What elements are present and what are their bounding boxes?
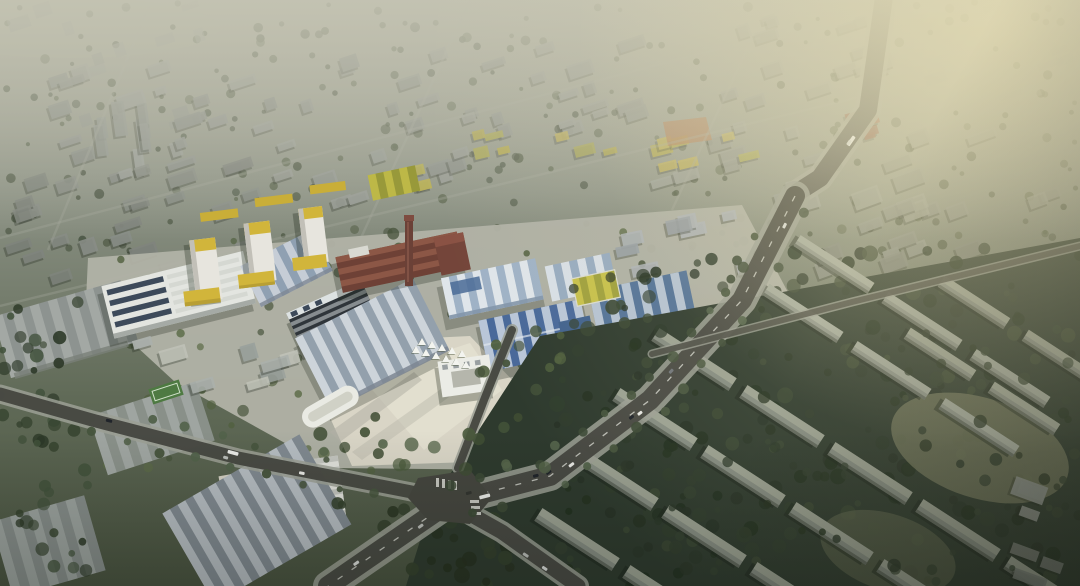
bottom-vignette [0,0,1080,586]
scene-canvas [0,0,1080,586]
aerial-masterplan-rendering [0,0,1080,586]
